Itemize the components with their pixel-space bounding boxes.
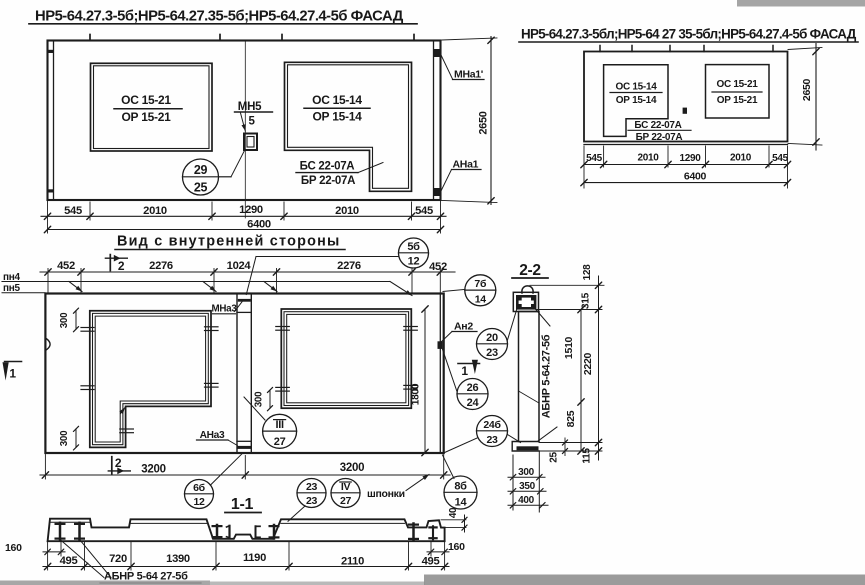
svg-text:5: 5 — [248, 116, 255, 128]
svg-text:7б: 7б — [474, 278, 487, 290]
svg-text:23: 23 — [486, 434, 498, 446]
svg-text:АБНР 5-64.27-5б: АБНР 5-64.27-5б — [541, 334, 553, 418]
svg-text:23: 23 — [306, 495, 318, 507]
svg-text:ОС 15-14: ОС 15-14 — [312, 93, 362, 107]
svg-text:МН5: МН5 — [238, 101, 262, 113]
svg-text:6400: 6400 — [247, 219, 271, 231]
svg-text:6400: 6400 — [684, 171, 707, 183]
svg-text:350: 350 — [519, 481, 536, 492]
svg-text:545: 545 — [586, 153, 603, 164]
svg-text:2650: 2650 — [801, 78, 813, 101]
svg-text:495: 495 — [422, 556, 440, 568]
svg-text:5б: 5б — [407, 241, 420, 253]
svg-text:1290: 1290 — [239, 204, 263, 216]
svg-text:ОР 15-14: ОР 15-14 — [313, 110, 363, 124]
svg-text:шпонки: шпонки — [367, 488, 405, 500]
svg-text:452: 452 — [429, 261, 447, 273]
svg-text:40: 40 — [448, 507, 459, 518]
svg-text:2: 2 — [118, 259, 125, 273]
svg-text:АНа1: АНа1 — [453, 159, 479, 171]
svg-text:29: 29 — [194, 163, 208, 177]
svg-text:БР 22-07А: БР 22-07А — [636, 132, 683, 143]
svg-text:26: 26 — [467, 382, 479, 394]
svg-text:545: 545 — [64, 205, 82, 217]
svg-text:1800: 1800 — [411, 383, 422, 405]
svg-text:14: 14 — [455, 497, 468, 509]
svg-text:Ан2: Ан2 — [454, 321, 473, 333]
svg-text:115: 115 — [582, 448, 593, 464]
svg-text:160: 160 — [5, 542, 22, 554]
svg-text:1-1: 1-1 — [231, 496, 254, 513]
svg-text:12: 12 — [408, 256, 420, 268]
svg-text:1390: 1390 — [166, 553, 190, 565]
svg-text:1190: 1190 — [243, 552, 266, 564]
svg-text:400: 400 — [518, 495, 535, 506]
svg-text:300: 300 — [518, 467, 535, 478]
svg-text:АНа3: АНа3 — [200, 430, 225, 441]
svg-text:ОР 15-14: ОР 15-14 — [616, 95, 657, 106]
svg-text:1: 1 — [9, 367, 16, 381]
svg-text:720: 720 — [109, 553, 127, 565]
svg-text:БС 22-07А: БС 22-07А — [300, 161, 355, 173]
svg-text:300: 300 — [59, 430, 70, 446]
svg-text:МНа3: МНа3 — [212, 304, 238, 315]
svg-text:545: 545 — [415, 205, 433, 217]
svg-text:III: III — [275, 419, 284, 431]
svg-text:2010: 2010 — [637, 153, 659, 164]
svg-text:3200: 3200 — [340, 462, 364, 474]
svg-text:3200: 3200 — [141, 464, 165, 476]
svg-text:12: 12 — [193, 496, 205, 508]
svg-text:20: 20 — [486, 332, 498, 344]
svg-text:27: 27 — [274, 436, 286, 448]
svg-text:315: 315 — [581, 292, 592, 309]
svg-text:2010: 2010 — [143, 205, 167, 217]
svg-text:МНа1': МНа1' — [454, 69, 483, 81]
svg-text:545: 545 — [772, 153, 789, 164]
svg-text:2220: 2220 — [582, 352, 594, 375]
svg-text:ОС 15-21: ОС 15-21 — [121, 93, 171, 107]
svg-text:2110: 2110 — [341, 556, 364, 568]
svg-text:ОР 15-21: ОР 15-21 — [717, 95, 758, 106]
svg-text:14: 14 — [475, 293, 487, 305]
svg-text:23: 23 — [486, 347, 498, 359]
svg-text:160: 160 — [448, 541, 465, 553]
svg-text:ОС 15-21: ОС 15-21 — [717, 79, 759, 90]
svg-text:2010: 2010 — [335, 205, 359, 217]
svg-text:БР 22-07А: БР 22-07А — [301, 175, 355, 187]
svg-text:2: 2 — [115, 456, 122, 470]
svg-text:24: 24 — [467, 397, 480, 409]
svg-text:2010: 2010 — [730, 153, 752, 164]
svg-text:НР5-64.27.3-5бл;НР5-64 27 35-5: НР5-64.27.3-5бл;НР5-64 27 35-5бл;НР5-64.… — [521, 27, 857, 42]
svg-text:25: 25 — [194, 181, 208, 195]
svg-text:24б: 24б — [483, 419, 501, 431]
svg-text:1024: 1024 — [227, 260, 252, 272]
svg-text:825: 825 — [565, 410, 577, 427]
svg-text:1290: 1290 — [679, 153, 701, 164]
svg-text:ОС 15-14: ОС 15-14 — [616, 82, 658, 93]
svg-text:1: 1 — [461, 364, 468, 378]
svg-text:27: 27 — [340, 495, 352, 507]
svg-text:2276: 2276 — [337, 260, 361, 272]
svg-text:300: 300 — [254, 391, 265, 407]
svg-text:25: 25 — [549, 452, 560, 463]
svg-text:НР5-64.27.3-5б;НР5-64.27.35-5б: НР5-64.27.3-5б;НР5-64.27.35-5б;НР5-64.27… — [35, 9, 404, 25]
svg-text:452: 452 — [57, 260, 75, 272]
svg-text:8б: 8б — [454, 480, 467, 492]
svg-text:2650: 2650 — [478, 111, 490, 134]
svg-text:23: 23 — [306, 481, 318, 493]
svg-text:ОР 15-21: ОР 15-21 — [122, 110, 172, 124]
svg-text:300: 300 — [59, 312, 70, 328]
svg-text:128: 128 — [582, 264, 593, 281]
svg-text:1510: 1510 — [563, 336, 575, 359]
svg-text:БС 22-07А: БС 22-07А — [634, 120, 681, 131]
svg-text:2276: 2276 — [149, 260, 173, 272]
svg-text:495: 495 — [60, 555, 78, 567]
svg-text:6б: 6б — [193, 482, 206, 494]
svg-text:2-2: 2-2 — [519, 262, 541, 279]
